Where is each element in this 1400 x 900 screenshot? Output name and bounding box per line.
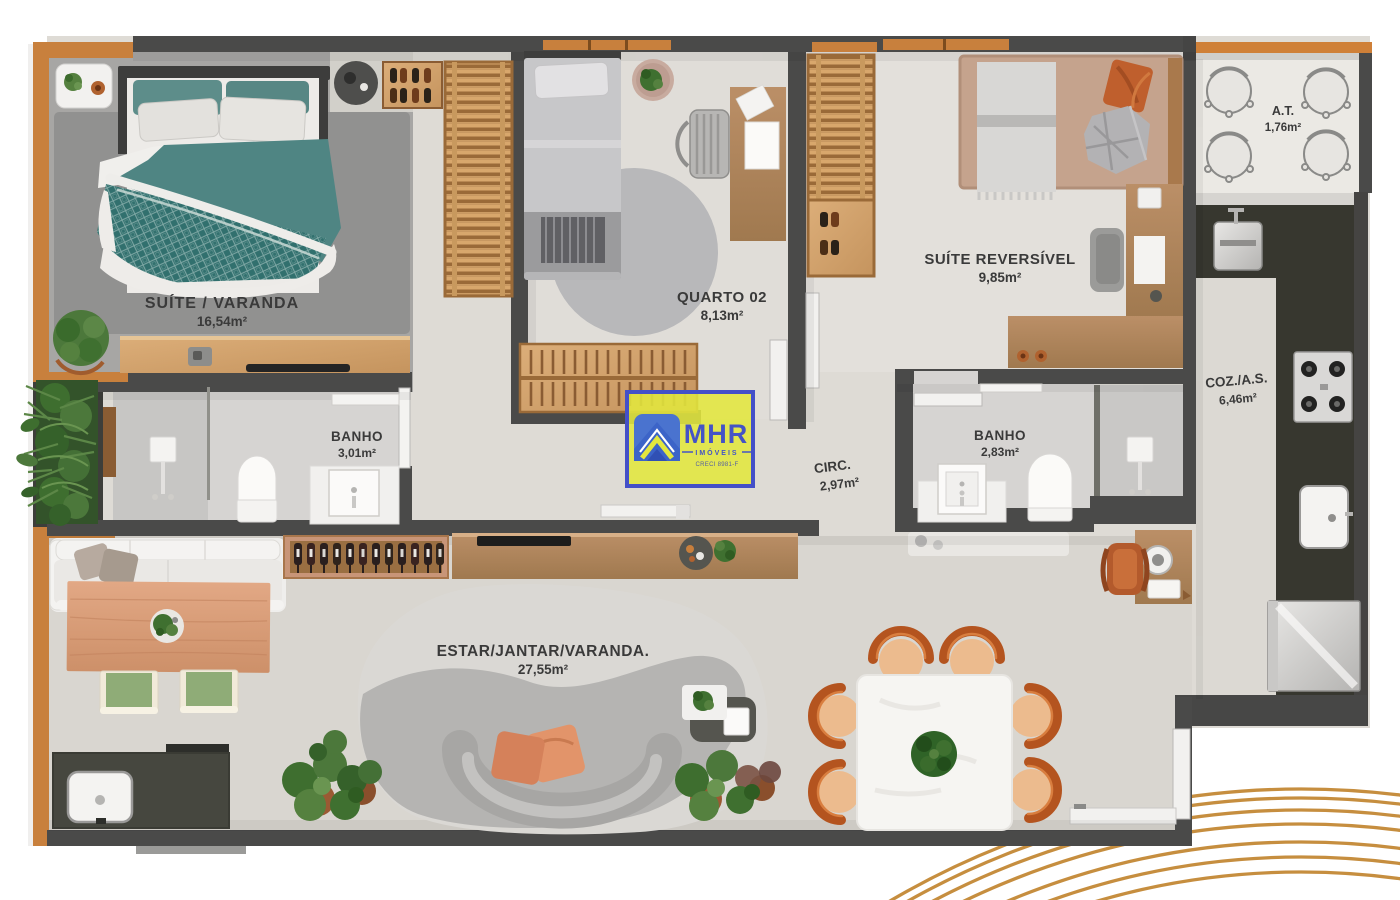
- svg-text:BANHO: BANHO: [331, 429, 383, 444]
- svg-text:QUARTO 02: QUARTO 02: [677, 289, 767, 306]
- svg-text:9,85m²: 9,85m²: [979, 270, 1022, 285]
- svg-text:IMÓVEIS: IMÓVEIS: [695, 448, 738, 457]
- svg-text:CRECI 8981-F: CRECI 8981-F: [696, 462, 739, 468]
- svg-text:2,83m²: 2,83m²: [981, 445, 1019, 459]
- svg-text:SUÍTE REVERSÍVEL: SUÍTE REVERSÍVEL: [924, 251, 1075, 268]
- svg-text:16,54m²: 16,54m²: [197, 314, 248, 329]
- svg-text:SUÍTE / VARANDA: SUÍTE / VARANDA: [145, 293, 299, 312]
- svg-text:1,76m²: 1,76m²: [1265, 122, 1302, 134]
- svg-text:3,01m²: 3,01m²: [338, 446, 376, 460]
- svg-text:27,55m²: 27,55m²: [518, 662, 569, 677]
- svg-text:ESTAR/JANTAR/VARANDA.: ESTAR/JANTAR/VARANDA.: [437, 643, 650, 660]
- svg-text:A.T.: A.T.: [1272, 104, 1294, 118]
- svg-text:8,13m²: 8,13m²: [701, 308, 744, 323]
- svg-text:MHR: MHR: [684, 419, 749, 449]
- svg-text:BANHO: BANHO: [974, 428, 1026, 443]
